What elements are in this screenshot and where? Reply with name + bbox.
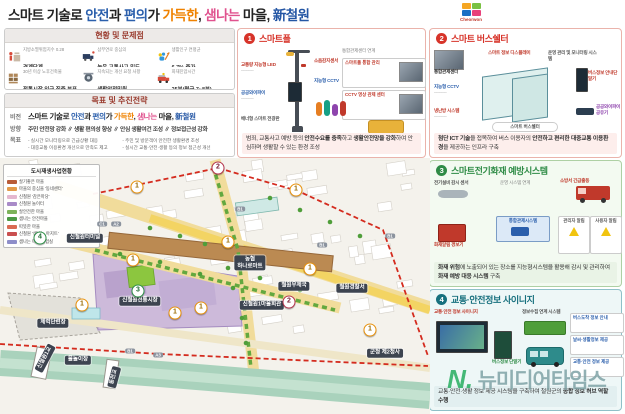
construction-vehicle-illustration [368, 120, 404, 134]
photo-thumbnail [399, 94, 423, 114]
bus-illustration [526, 347, 564, 365]
feature-banner: 배너형 스마트 전광판 [241, 116, 285, 122]
map-marker-1: 1 [169, 307, 182, 320]
fire-truck-illustration [576, 186, 610, 200]
roadside-sign-illustration [524, 321, 566, 335]
map-label: 철원경찰서 [336, 284, 367, 293]
direction-text: 주민 안전망 강화 ∥ 생활 편의성 향상 ∥ 안심 생활여건 조성 ∥ 정보접… [28, 124, 208, 133]
map-marker-2: 2 [283, 296, 296, 309]
feature-signage-did: 교통·안전 정보 사이니지 [434, 309, 490, 315]
feature-weather-info: 날씨·생활정보 제공 [570, 335, 624, 355]
village-map: 도시재생사업현황 살기좋은 마을마을의 중심을 '동네센터'신철원 '감은마당'… [0, 158, 430, 414]
goal-list: - 실시간 모니터링으로 긴급상황 대응- 주민 및 방문객이 안전한 생활환경… [28, 138, 211, 152]
control-center-photo [434, 50, 464, 70]
map-label: 물놀이장 [65, 356, 91, 365]
feature-platform: 통합관제시스템 [496, 216, 550, 242]
map-zone-badge: B1 [385, 234, 395, 239]
legend-row: 살안전한 마을 [7, 209, 96, 215]
feature-sensor: 전기설비 감시 센서 [434, 180, 482, 186]
goal-item: - 대중교통 이용환경 개선으로 만족도 제고 [28, 145, 116, 152]
legend-row: 신철원 놀이터 [7, 201, 96, 207]
panel2-title: 스마트 버스쉘터 [451, 32, 508, 45]
poster-page: 스마트 기술로 안전과 편의가 가득한, 샘나는 마을, 新철원 Cheorwo… [0, 0, 625, 414]
legend-row: 마을의 중심을 '동네센터' [7, 186, 96, 192]
panel4-number: 4 [436, 294, 447, 305]
status-item: 지속되는 개선 요청 사항생활안전민원 [82, 67, 156, 89]
panel4-title: 교통·안전정보 사이니지 [451, 293, 535, 306]
map-label: 신철원터미널 [67, 234, 103, 243]
feature-pole-mgmt: 스마트폴 통합 관리 [342, 58, 426, 88]
map-marker-1: 1 [364, 324, 377, 337]
goal-item: - 주민 및 방문객이 안전한 생활환경 조성 [122, 138, 210, 145]
map-label: 군청 제2청사 [367, 349, 403, 358]
panel2-caption: 첨단 ICT 기술을 접목하여 버스 이용자의 안전하고 편리한 대중교통 이용… [434, 133, 617, 154]
panel3-caption: 화재 위험에 노출되어 있는 장소를 지능형시스템을 활용해 감시 및 관리하여… [434, 262, 617, 283]
cheorwon-logo: Cheorwon [456, 3, 486, 22]
photo-thumbnail [399, 62, 423, 82]
feature-shelter-cctv: 지능형 CCTV ───── [434, 84, 474, 95]
status-panel: 현황 및 문제점 지방소멸위험지수 0.28경계단계삼부연로 중심의높은 교통사… [4, 28, 235, 90]
page-title: 스마트 기술로 안전과 편의가 가득한, 샘나는 마을, 新철원 [8, 4, 309, 24]
legend-title: 도시재생사업현황 [7, 167, 96, 177]
feature-router: 공공와이파이 공유기 [596, 104, 622, 115]
status-items: 지방소멸위험지수 0.28경계단계삼부연로 중심의높은 교통사고 밀도생활인구 … [5, 43, 234, 91]
bus-shelter-illustration-2 [512, 73, 548, 122]
panel1-title: 스마트폴 [259, 32, 291, 45]
fire-alarm-illustration [438, 224, 466, 242]
pole-cctv-icon [301, 64, 306, 67]
legend-row: 신철원 '감은마당' [7, 194, 96, 200]
status-item: 생활인구 연평균6.7% 증가 [157, 45, 231, 67]
map-marker-1: 1 [222, 236, 235, 249]
direction-label: 방향 [10, 124, 28, 133]
panel-signage: 4 교통·안전정보 사이니지 교통·안전 정보 사이니지 버스정보 단말기 정보… [429, 289, 622, 411]
map-label: 신철원전통시장 [119, 297, 160, 306]
map-marker-1: 1 [304, 263, 317, 276]
map-marker-1: 1 [127, 254, 140, 267]
feature-wifi: 공공와이파이 ───── [241, 90, 285, 101]
legend-row: 살기좋은 마을 [7, 179, 96, 185]
map-label: 체력단련장 [37, 319, 68, 328]
feature-bus-arrival: 버스도착 정보 안내 [570, 313, 624, 333]
map-zone-badge: A3 [153, 353, 163, 358]
pole-lamp [286, 52, 294, 56]
panel1-number: 1 [244, 33, 255, 44]
pedestrians-illustration [316, 98, 350, 120]
map-zone-badge: B1 [125, 349, 135, 354]
feature-hvac: 냉난방 시스템 ───── [434, 108, 474, 119]
feature-center-link: 통합관제센터 연계 [342, 48, 422, 54]
map-zone-badge: B1 [317, 243, 327, 248]
sensor-illustration [438, 190, 468, 198]
pole-banner-display [288, 82, 302, 102]
goal-panel: 목표 및 추진전략 비전 스마트 기술로 안전과 편의가 가득한, 샘나는 마을… [4, 93, 235, 157]
panel1-caption: 범죄, 교통사고 예방 등의 안전수요를 충족하고 생활안전망을 강화하여 안심… [242, 133, 421, 154]
map-label: 신철원1마을회관 [240, 301, 284, 310]
goal-item: - 실시간 교통·안전·생활 등의 정보 접근성 개선 [122, 145, 210, 152]
feature-network: 정보수집 연계 시스템 [522, 309, 572, 315]
panel4-caption: 교통·안전·생활 정보 제공 시스템을 구축하여 철원군의 종합 정보 허브 역… [434, 386, 617, 407]
feature-monitoring: 운영 관리 및 모니터링 시스템 [548, 50, 600, 61]
bus-info-kiosk [576, 68, 588, 92]
cheorwon-logo-icon [462, 3, 481, 16]
legend-row: 샘나는 안전마을 [7, 216, 96, 222]
panel3-title: 스마트전기화재 예방시스템 [451, 164, 548, 177]
panel-smart-pole: 1 스마트폴 교통량 지능형 LED ───── 공공와이파이 ───── 배너… [237, 28, 426, 158]
map-zone-badge: B1 [235, 207, 245, 212]
vision-text: 스마트 기술로 안전과 편의가 가득한, 샘나는 마을, 新철원 [28, 111, 196, 122]
status-item: 화재진압시간25분(평균 7~8분) [157, 67, 231, 89]
feature-cctv-center: CCTV 영상 관제 센터 [342, 90, 426, 120]
status-item: 30년 이상 노후건축물전통시장 인근 집중 분포 [8, 67, 82, 89]
goal-item: - 실시간 모니터링으로 긴급상황 대응 [28, 138, 116, 145]
status-item: 지방소멸위험지수 0.28경계단계 [8, 45, 82, 67]
feature-user-alert: 사용자 알림 [590, 216, 622, 254]
panel-fire-prevention: 3 스마트전기화재 예방시스템 전기설비 감시 센서 화재알림 경보기 운영 시… [429, 160, 622, 287]
map-marker-1: 1 [131, 181, 144, 194]
map-marker-3: 3 [132, 285, 145, 298]
legend-row: 따뜻한 마을 [7, 224, 96, 230]
panel-bus-shelter: 2 스마트 버스쉘터 통합관제센터 지능형 CCTV ───── 냉난방 시스템… [429, 28, 622, 158]
feature-traffic-info: 교통·안전 정보 제공 [570, 357, 624, 377]
feature-display: 스마트 정보 디스플레이 [488, 50, 532, 56]
shelter-pill-label: 스마트 버스쉘터 [492, 122, 558, 132]
pole-base [292, 126, 303, 132]
vision-label: 비전 [10, 112, 28, 121]
map-zone-badge: C1 [97, 222, 107, 227]
map-label: 철원우체국 [278, 282, 309, 291]
feature-system-link: 운영 시스템 연계 [500, 180, 550, 186]
map-marker-1: 1 [290, 184, 303, 197]
panel2-number: 2 [436, 33, 447, 44]
map-label: 농협하나로마트 [234, 255, 265, 270]
feature-led: 교통량 지능형 LED ───── [241, 62, 285, 73]
signage-display-illustration [436, 321, 488, 353]
map-zone-badge: A2 [111, 222, 121, 227]
feature-alarm: 화재알림 경보기 [434, 242, 478, 248]
cheorwon-logo-label: Cheorwon [456, 17, 486, 22]
goal-panel-title: 목표 및 추진전략 [5, 94, 234, 108]
feature-bit-display: 버스정보 단말기 [492, 359, 522, 365]
wifi-router-illustration [576, 108, 594, 115]
feature-bit: 버스정보 안내단말기 [588, 70, 620, 81]
panel3-number: 3 [436, 165, 447, 176]
feature-fire-dispatch: 소방서 긴급출동 [560, 178, 616, 184]
feature-manager-alert: 관리자 알림 [558, 216, 590, 254]
status-panel-title: 현황 및 문제점 [5, 29, 234, 43]
map-marker-2: 2 [212, 162, 225, 175]
map-marker-1: 1 [195, 302, 208, 315]
status-item: 삼부연로 중심의높은 교통사고 밀도 [82, 45, 156, 67]
map-marker-4: 4 [34, 232, 47, 245]
map-marker-1: 1 [76, 299, 89, 312]
feature-control-center: 통합관제센터 [434, 69, 474, 75]
goal-label: 목표 [10, 135, 28, 144]
bus-info-display-illustration [494, 331, 512, 359]
